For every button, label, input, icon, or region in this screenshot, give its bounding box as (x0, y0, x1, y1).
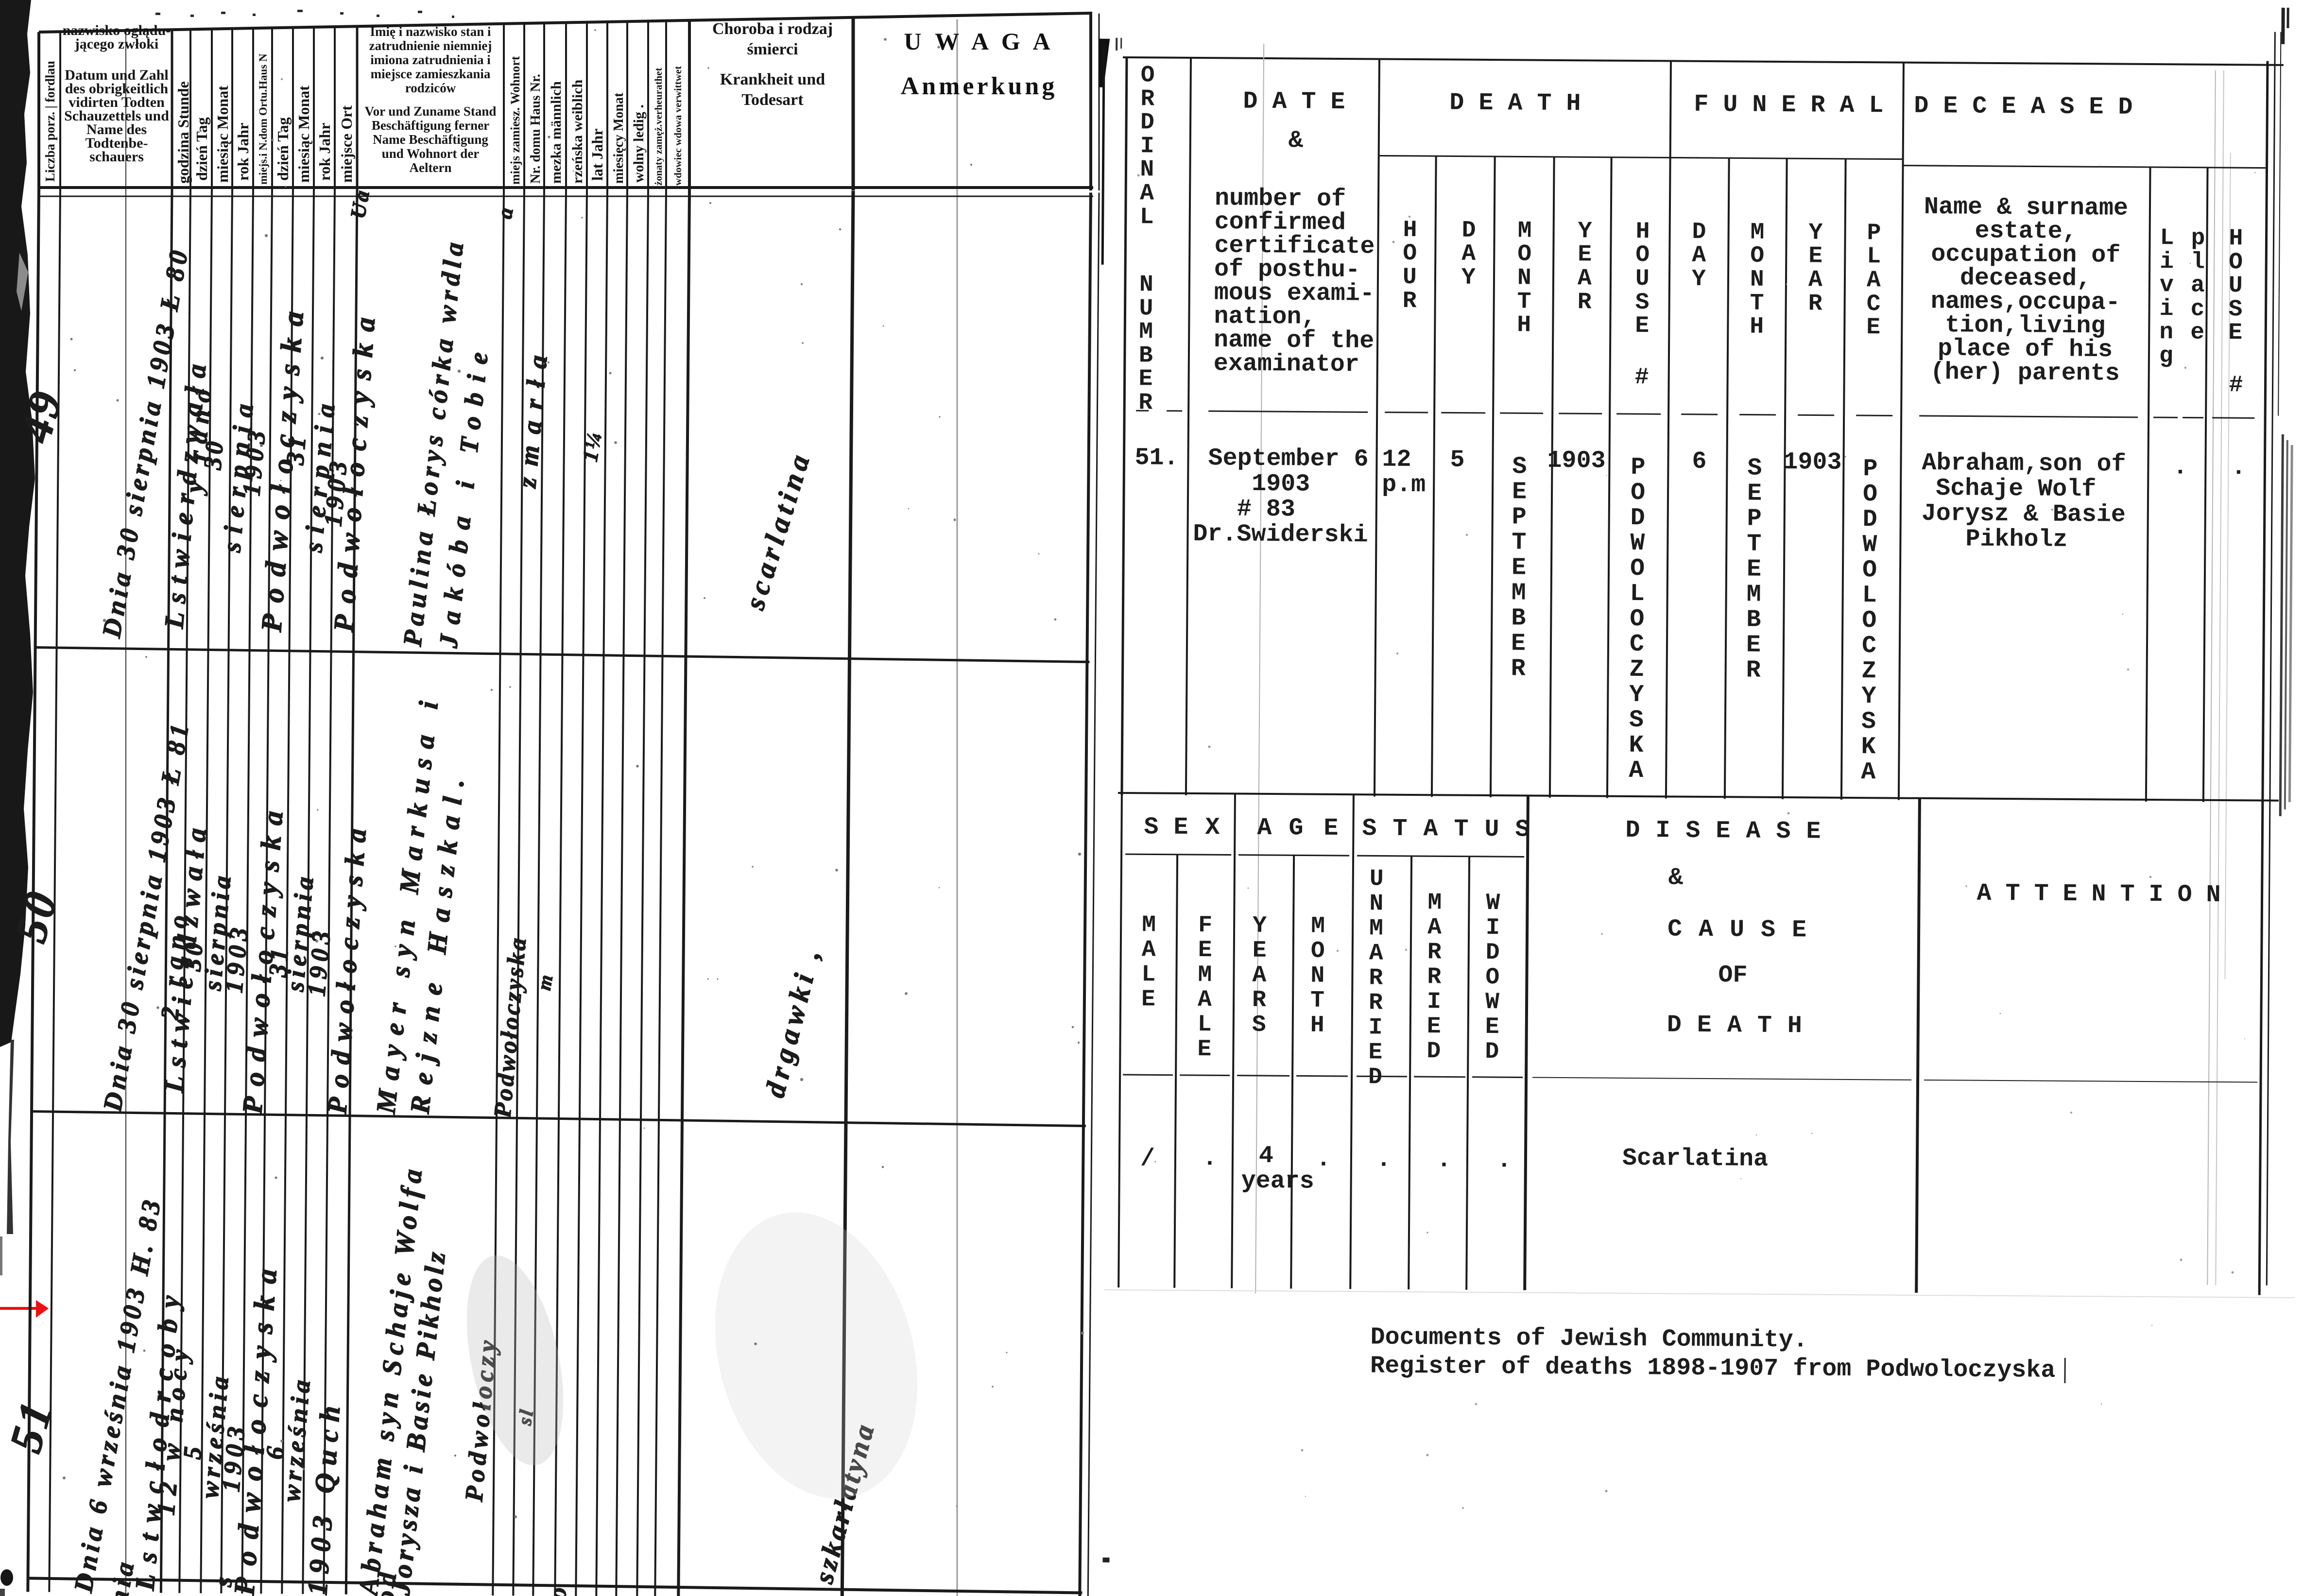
svg-text:Abraham,son of: Abraham,son of (1922, 449, 2126, 479)
svg-text:D: D (1140, 109, 1154, 136)
svg-text:A: A (1861, 758, 1875, 786)
svg-text:T: T (1310, 988, 1324, 1014)
svg-text:Z: Z (1629, 656, 1644, 684)
svg-text:v: v (2160, 272, 2174, 298)
svg-text:A: A (1976, 880, 1991, 908)
svg-text:September 6: September 6 (1208, 445, 1368, 473)
svg-text:N: N (1369, 891, 1383, 917)
svg-text:4: 4 (1259, 1142, 1273, 1170)
svg-text:rzeńska weiblich: rzeńska weiblich (569, 80, 585, 184)
svg-text:p: p (2191, 225, 2205, 252)
svg-text:years: years (1241, 1167, 1314, 1196)
svg-text:Name Beschäftigung: Name Beschäftigung (373, 132, 488, 147)
svg-text:.: . (1203, 1145, 1217, 1172)
svg-text:N: N (2206, 881, 2220, 909)
svg-text:dzień Tag: dzień Tag (274, 117, 292, 181)
svg-text:E: E (1697, 1012, 1712, 1039)
svg-text:E: E (1197, 1036, 1211, 1063)
svg-text:O: O (1750, 243, 1764, 269)
svg-text:miesiąc Monat: miesiąc Monat (295, 86, 312, 183)
svg-text:godzina Stunde: godzina Stunde (174, 81, 192, 184)
svg-text:N: N (2091, 880, 2106, 908)
svg-text:O: O (1631, 479, 1645, 507)
svg-text:12: 12 (1382, 446, 1411, 474)
svg-text:miejs zamiesz. Wohnort: miejs zamiesz. Wohnort (508, 56, 522, 185)
svg-text:#: # (2229, 372, 2243, 398)
svg-text:I: I (2148, 881, 2163, 909)
svg-text:H: H (1787, 1012, 1802, 1040)
svg-text:I: I (1427, 989, 1441, 1015)
svg-text:U: U (1139, 295, 1153, 322)
svg-text:C: C (1866, 291, 1880, 317)
svg-text:G: G (1289, 814, 1303, 842)
svg-text:a: a (2191, 273, 2205, 299)
svg-text:S: S (2228, 296, 2242, 323)
svg-text:U W A G A: U W A G A (904, 28, 1054, 55)
svg-text:Choroba i rodzaj: Choroba i rodzaj (712, 20, 833, 38)
svg-text:E: E (1198, 937, 1212, 963)
svg-text:rok Jahr: rok Jahr (234, 123, 252, 181)
svg-text:E: E (1746, 632, 1761, 659)
svg-text:R: R (1252, 987, 1266, 1013)
svg-text:P: P (1747, 505, 1762, 533)
svg-text:.: . (1376, 1146, 1391, 1174)
svg-text:D: D (1667, 1011, 1682, 1039)
svg-text:O: O (1635, 242, 1650, 268)
svg-text:P: P (1867, 220, 1881, 246)
svg-text:1903: 1903 (1547, 447, 1605, 475)
svg-text:S: S (1144, 813, 1158, 841)
svg-text:U: U (1403, 264, 1417, 291)
svg-text:miesiąc Monat: miesiąc Monat (214, 86, 231, 183)
svg-text:l: l (2191, 249, 2205, 275)
svg-text:Y: Y (1461, 265, 1476, 291)
svg-text:miejsce zamieszkania: miejsce zamieszkania (371, 67, 491, 81)
svg-text:# 83: # 83 (1237, 496, 1295, 524)
svg-text:jącego zwłoki: jącego zwłoki (74, 36, 158, 52)
svg-text:T: T (1517, 289, 1531, 315)
svg-text:T: T (2034, 880, 2048, 908)
svg-text:.: . (1497, 1147, 1512, 1174)
svg-text:D: D (1485, 1039, 1499, 1065)
svg-text:5: 5 (1450, 446, 1464, 474)
svg-text:und Wohnort der: und Wohnort der (382, 146, 480, 161)
svg-text:A: A (1461, 241, 1476, 267)
svg-text:E: E (2228, 320, 2242, 346)
svg-text:Beschäftigung ferner: Beschäftigung ferner (372, 118, 489, 133)
svg-text:E: E (1173, 814, 1188, 841)
svg-text:rodziców: rodziców (405, 81, 456, 95)
svg-text:(her) parents: (her) parents (1930, 359, 2120, 388)
svg-text:I: I (1655, 817, 1670, 844)
svg-text:A: A (1629, 757, 1643, 785)
svg-text:U: U (2229, 273, 2243, 299)
svg-text:E: E (1512, 554, 1526, 582)
svg-text:R: R (1403, 288, 1417, 314)
svg-text:dzień Tag: dzień Tag (193, 117, 210, 181)
svg-text:R: R (1808, 291, 1822, 317)
svg-text:O: O (1517, 241, 1531, 267)
svg-text:D: D (1426, 1038, 1441, 1064)
svg-text:E: E (1808, 243, 1822, 269)
svg-text:D: D (1863, 506, 1877, 533)
svg-text:N: N (1750, 267, 1764, 293)
svg-text:1903: 1903 (1783, 448, 1841, 477)
svg-text:L s: L s (206, 1571, 238, 1596)
svg-text:&: & (1668, 864, 1683, 892)
svg-text:A: A (1142, 937, 1156, 963)
svg-text:Y: Y (1629, 681, 1644, 709)
svg-text:H: H (1310, 1013, 1324, 1039)
svg-text:A: A (1423, 815, 1438, 843)
svg-text:Nr. domu Haus Nr.: Nr. domu Haus Nr. (528, 74, 543, 184)
svg-text:S: S (1685, 817, 1700, 845)
svg-text:H: H (1403, 217, 1417, 243)
svg-text:D: D (1461, 218, 1476, 244)
svg-text:A: A (1198, 987, 1212, 1013)
svg-text:schauers: schauers (89, 149, 144, 165)
svg-text:O: O (1141, 62, 1155, 88)
svg-text:miesięcy Monat: miesięcy Monat (611, 92, 626, 184)
svg-text:E: E (1368, 1039, 1382, 1065)
svg-text:T: T (1750, 291, 1764, 317)
svg-text:miejs.i N.dom Ortu.Haus N: miejs.i N.dom Ortu.Haus N (257, 53, 269, 185)
svg-text:S: S (1252, 1012, 1266, 1038)
svg-text:E: E (1323, 815, 1338, 842)
svg-text:R: R (1746, 657, 1760, 685)
svg-text:E: E (1138, 366, 1152, 392)
svg-text:S: S (1515, 816, 1530, 843)
svg-text:I: I (1369, 1014, 1383, 1041)
svg-text:examinator: examinator (1214, 350, 1359, 378)
svg-text:M: M (1517, 218, 1531, 244)
svg-text:e: e (2190, 320, 2204, 346)
svg-text:E: E (1747, 480, 1762, 508)
svg-text:.: . (1316, 1146, 1331, 1173)
svg-text:X: X (1205, 814, 1220, 841)
svg-text:S: S (1747, 455, 1762, 482)
svg-text:L: L (2160, 225, 2174, 251)
svg-text:O: O (1485, 964, 1499, 991)
svg-text:Y: Y (1578, 218, 1592, 244)
svg-text:Aeltern: Aeltern (410, 160, 452, 175)
svg-text:T: T (2120, 881, 2134, 909)
svg-text:S: S (1629, 706, 1644, 734)
svg-text:E: E (1512, 478, 1527, 506)
svg-text:R: R (1138, 390, 1152, 416)
svg-text:C: C (1862, 632, 1876, 660)
svg-text:E: E (1635, 313, 1649, 339)
svg-text:R: R (1427, 939, 1442, 965)
svg-text:O: O (1403, 240, 1417, 267)
svg-text:Scarlatina: Scarlatina (1622, 1145, 1768, 1173)
svg-text:wdowiec wdowa verwittwet: wdowiec wdowa verwittwet (672, 66, 684, 186)
svg-text:F: F (1198, 912, 1212, 939)
svg-text:wolny ledig .: wolny ledig . (631, 104, 647, 183)
svg-text:E: E (1485, 1014, 1499, 1040)
svg-text:U: U (1484, 816, 1499, 843)
svg-text:g: g (2159, 343, 2173, 369)
svg-text:T: T (1747, 531, 1761, 558)
svg-text:c: c (2190, 296, 2204, 323)
svg-text:A: A (1427, 914, 1442, 941)
svg-text:M: M (1142, 912, 1156, 938)
svg-text:L: L (1862, 582, 1876, 609)
svg-text:E: E (1427, 1013, 1441, 1040)
svg-text:M: M (1512, 579, 1526, 607)
svg-text:&: & (1289, 127, 1303, 154)
svg-text:D: D (1631, 504, 1645, 532)
svg-text:W: W (1630, 530, 1645, 557)
svg-text:Y: Y (1253, 913, 1267, 939)
svg-text:H: H (1517, 312, 1531, 338)
svg-text:H: H (2229, 225, 2243, 252)
svg-text:D: D (1692, 219, 1706, 245)
svg-text:Dr.Swiderski: Dr.Swiderski (1193, 520, 1368, 549)
svg-text:E: E (1747, 556, 1761, 583)
svg-text:D E C E A S E D: D E C E A S E D (1914, 92, 2132, 121)
svg-text:Schaje Wolf: Schaje Wolf (1936, 475, 2096, 503)
svg-text:Po: Po (542, 1582, 572, 1596)
svg-text:mezka männlich: mezka männlich (548, 81, 564, 184)
svg-text:N: N (1140, 156, 1154, 183)
svg-text:Imię i nazwisko stan i: Imię i nazwisko stan i (370, 24, 491, 39)
svg-text:O: O (1630, 555, 1645, 583)
svg-text:M: M (1369, 915, 1383, 942)
svg-text:D: D (1368, 1064, 1382, 1090)
svg-text:A: A (1369, 940, 1383, 966)
svg-text:H: H (1750, 314, 1764, 340)
svg-text:Liczba porz. | fordlau: Liczba porz. | fordlau (43, 61, 57, 182)
svg-text:Z: Z (1861, 657, 1876, 685)
svg-text:C: C (1667, 915, 1682, 943)
svg-text:L: L (1140, 204, 1154, 230)
svg-text:S: S (1776, 818, 1790, 845)
svg-text:E: E (1253, 938, 1267, 964)
svg-text:M: M (1427, 890, 1442, 916)
svg-text:A: A (1746, 818, 1760, 845)
svg-text:M: M (1139, 319, 1153, 345)
svg-text:S: S (1761, 916, 1775, 944)
svg-text:1903: 1903 (1252, 470, 1310, 498)
svg-text:6: 6 (1692, 448, 1706, 476)
svg-text:P: P (1863, 455, 1877, 483)
svg-text:A: A (1257, 814, 1272, 842)
svg-text:R: R (1369, 965, 1383, 991)
svg-text:O: O (2229, 249, 2243, 275)
svg-text:A: A (1727, 1012, 1742, 1039)
svg-text:W: W (1862, 531, 1877, 559)
svg-text:A: A (1252, 962, 1266, 989)
svg-text:O: O (1862, 607, 1876, 635)
svg-text:O: O (1311, 938, 1325, 964)
svg-text:Y: Y (1692, 266, 1706, 292)
svg-text:Pikholz: Pikholz (1965, 526, 2067, 554)
svg-text:L: L (1198, 1012, 1212, 1038)
svg-text:T: T (1512, 529, 1526, 556)
svg-text:U: U (1635, 266, 1650, 292)
svg-text:B: B (1511, 604, 1526, 632)
svg-text:N: N (1139, 272, 1153, 298)
svg-text:Vor und Zuname Stand: Vor und Zuname Stand (365, 104, 497, 119)
svg-text:i: i (2160, 249, 2174, 275)
svg-text:R: R (1427, 964, 1441, 990)
svg-text:L: L (1867, 243, 1881, 270)
svg-text:W: W (1485, 989, 1499, 1015)
svg-text:K: K (1629, 732, 1643, 759)
svg-text:B: B (1746, 606, 1761, 634)
svg-text:imiona zatrudnienia i: imiona zatrudnienia i (370, 52, 491, 67)
svg-text:T: T (2005, 880, 2020, 908)
svg-text:R: R (1140, 86, 1154, 112)
svg-text:A: A (1867, 267, 1881, 293)
svg-text:I: I (1486, 915, 1500, 941)
svg-text:Jorysz & Basie: Jorysz & Basie (1922, 500, 2126, 529)
svg-text:E: E (1578, 241, 1592, 268)
svg-text:H: H (1635, 219, 1650, 245)
svg-text:U: U (1730, 916, 1744, 944)
svg-text:Y: Y (1808, 220, 1822, 246)
svg-text:Register of deaths 1898-1907 f: Register of deaths 1898-1907 from Podwol… (1370, 1352, 2056, 1384)
svg-text:/: / (1140, 1145, 1155, 1173)
svg-text:D: D (1625, 817, 1640, 844)
svg-text:A: A (1808, 267, 1822, 293)
svg-text:O: O (1862, 556, 1877, 584)
svg-text:M: M (1311, 913, 1325, 940)
svg-text:M: M (1747, 581, 1761, 609)
svg-text:Krankheit und: Krankheit und (720, 70, 825, 88)
svg-text:Y: Y (1861, 683, 1876, 710)
svg-text:.: . (2173, 453, 2187, 481)
svg-text:D A T E: D A T E (1243, 88, 1345, 116)
svg-text:O: O (2177, 881, 2192, 909)
svg-text:T: T (1757, 1012, 1772, 1040)
svg-text:A: A (1578, 265, 1592, 292)
svg-text:I: I (1140, 133, 1154, 159)
svg-text:rok Jahr: rok Jahr (316, 123, 333, 181)
svg-text:E: E (2062, 880, 2077, 908)
svg-text:N: N (1310, 963, 1324, 989)
svg-text:S: S (1512, 453, 1527, 481)
svg-text:E: E (1792, 916, 1806, 944)
svg-text:S: S (1861, 708, 1876, 736)
svg-text:lat Jahr: lat Jahr (588, 128, 606, 181)
svg-text:A: A (1692, 242, 1706, 269)
svg-text:K: K (1861, 733, 1875, 761)
svg-text:OF: OF (1718, 961, 1747, 989)
svg-text:C: C (1630, 631, 1644, 658)
svg-text:A: A (1140, 180, 1154, 206)
svg-text:.: . (2231, 454, 2246, 481)
svg-text:M: M (1750, 220, 1764, 246)
svg-text:D: D (1486, 940, 1500, 966)
svg-text:51.: 51. (1134, 444, 1178, 472)
svg-text:P: P (1631, 454, 1645, 481)
svg-text:B: B (1139, 343, 1153, 369)
svg-text:Pod: Pod (368, 1566, 402, 1596)
svg-text:E: E (1716, 817, 1730, 845)
svg-text:S: S (1635, 290, 1649, 316)
svg-text:R: R (1577, 289, 1591, 315)
svg-text:W: W (1486, 890, 1500, 916)
svg-text:N: N (1517, 265, 1531, 291)
svg-text:p.m: p.m (1382, 471, 1426, 499)
svg-text:E: E (1141, 986, 1155, 1013)
svg-text:O: O (1863, 481, 1877, 508)
svg-text:E: E (1866, 314, 1880, 341)
svg-text:i: i (2159, 296, 2173, 322)
svg-text:D E A T H: D E A T H (1449, 89, 1581, 118)
svg-text:M: M (1198, 962, 1212, 988)
svg-text:P: P (1512, 503, 1527, 531)
svg-text:R: R (1511, 655, 1525, 683)
svg-text:U: U (1370, 866, 1384, 892)
svg-text:A: A (1699, 916, 1713, 944)
svg-text:śmierci: śmierci (747, 40, 798, 58)
svg-text:Anmerkung: Anmerkung (901, 72, 1058, 100)
svg-text:Documents of Jewish Community.: Documents of Jewish Community. (1370, 1323, 1808, 1354)
svg-text:zatrudnienie niemniej: zatrudnienie niemniej (369, 38, 492, 53)
svg-text:T: T (1392, 815, 1407, 843)
svg-text:E: E (1511, 630, 1526, 657)
svg-text:Todesart: Todesart (741, 91, 804, 109)
svg-text:L: L (1141, 961, 1155, 988)
svg-text:n: n (2159, 319, 2173, 345)
svg-text:żonaty zamęż.verheurathet: żonaty zamęż.verheurathet (653, 68, 664, 186)
svg-text:O: O (1630, 605, 1644, 633)
svg-text:#: # (1634, 364, 1649, 391)
svg-text:T: T (1454, 816, 1468, 843)
svg-text:E: E (1806, 818, 1821, 845)
svg-text:L: L (1630, 580, 1645, 608)
svg-text:F U N E R A L: F U N E R A L (1694, 91, 1883, 120)
svg-text:miejsce Ort: miejsce Ort (338, 105, 355, 183)
svg-text:.: . (1437, 1146, 1451, 1174)
svg-text:R: R (1369, 990, 1383, 1016)
svg-text:S: S (1362, 815, 1376, 842)
